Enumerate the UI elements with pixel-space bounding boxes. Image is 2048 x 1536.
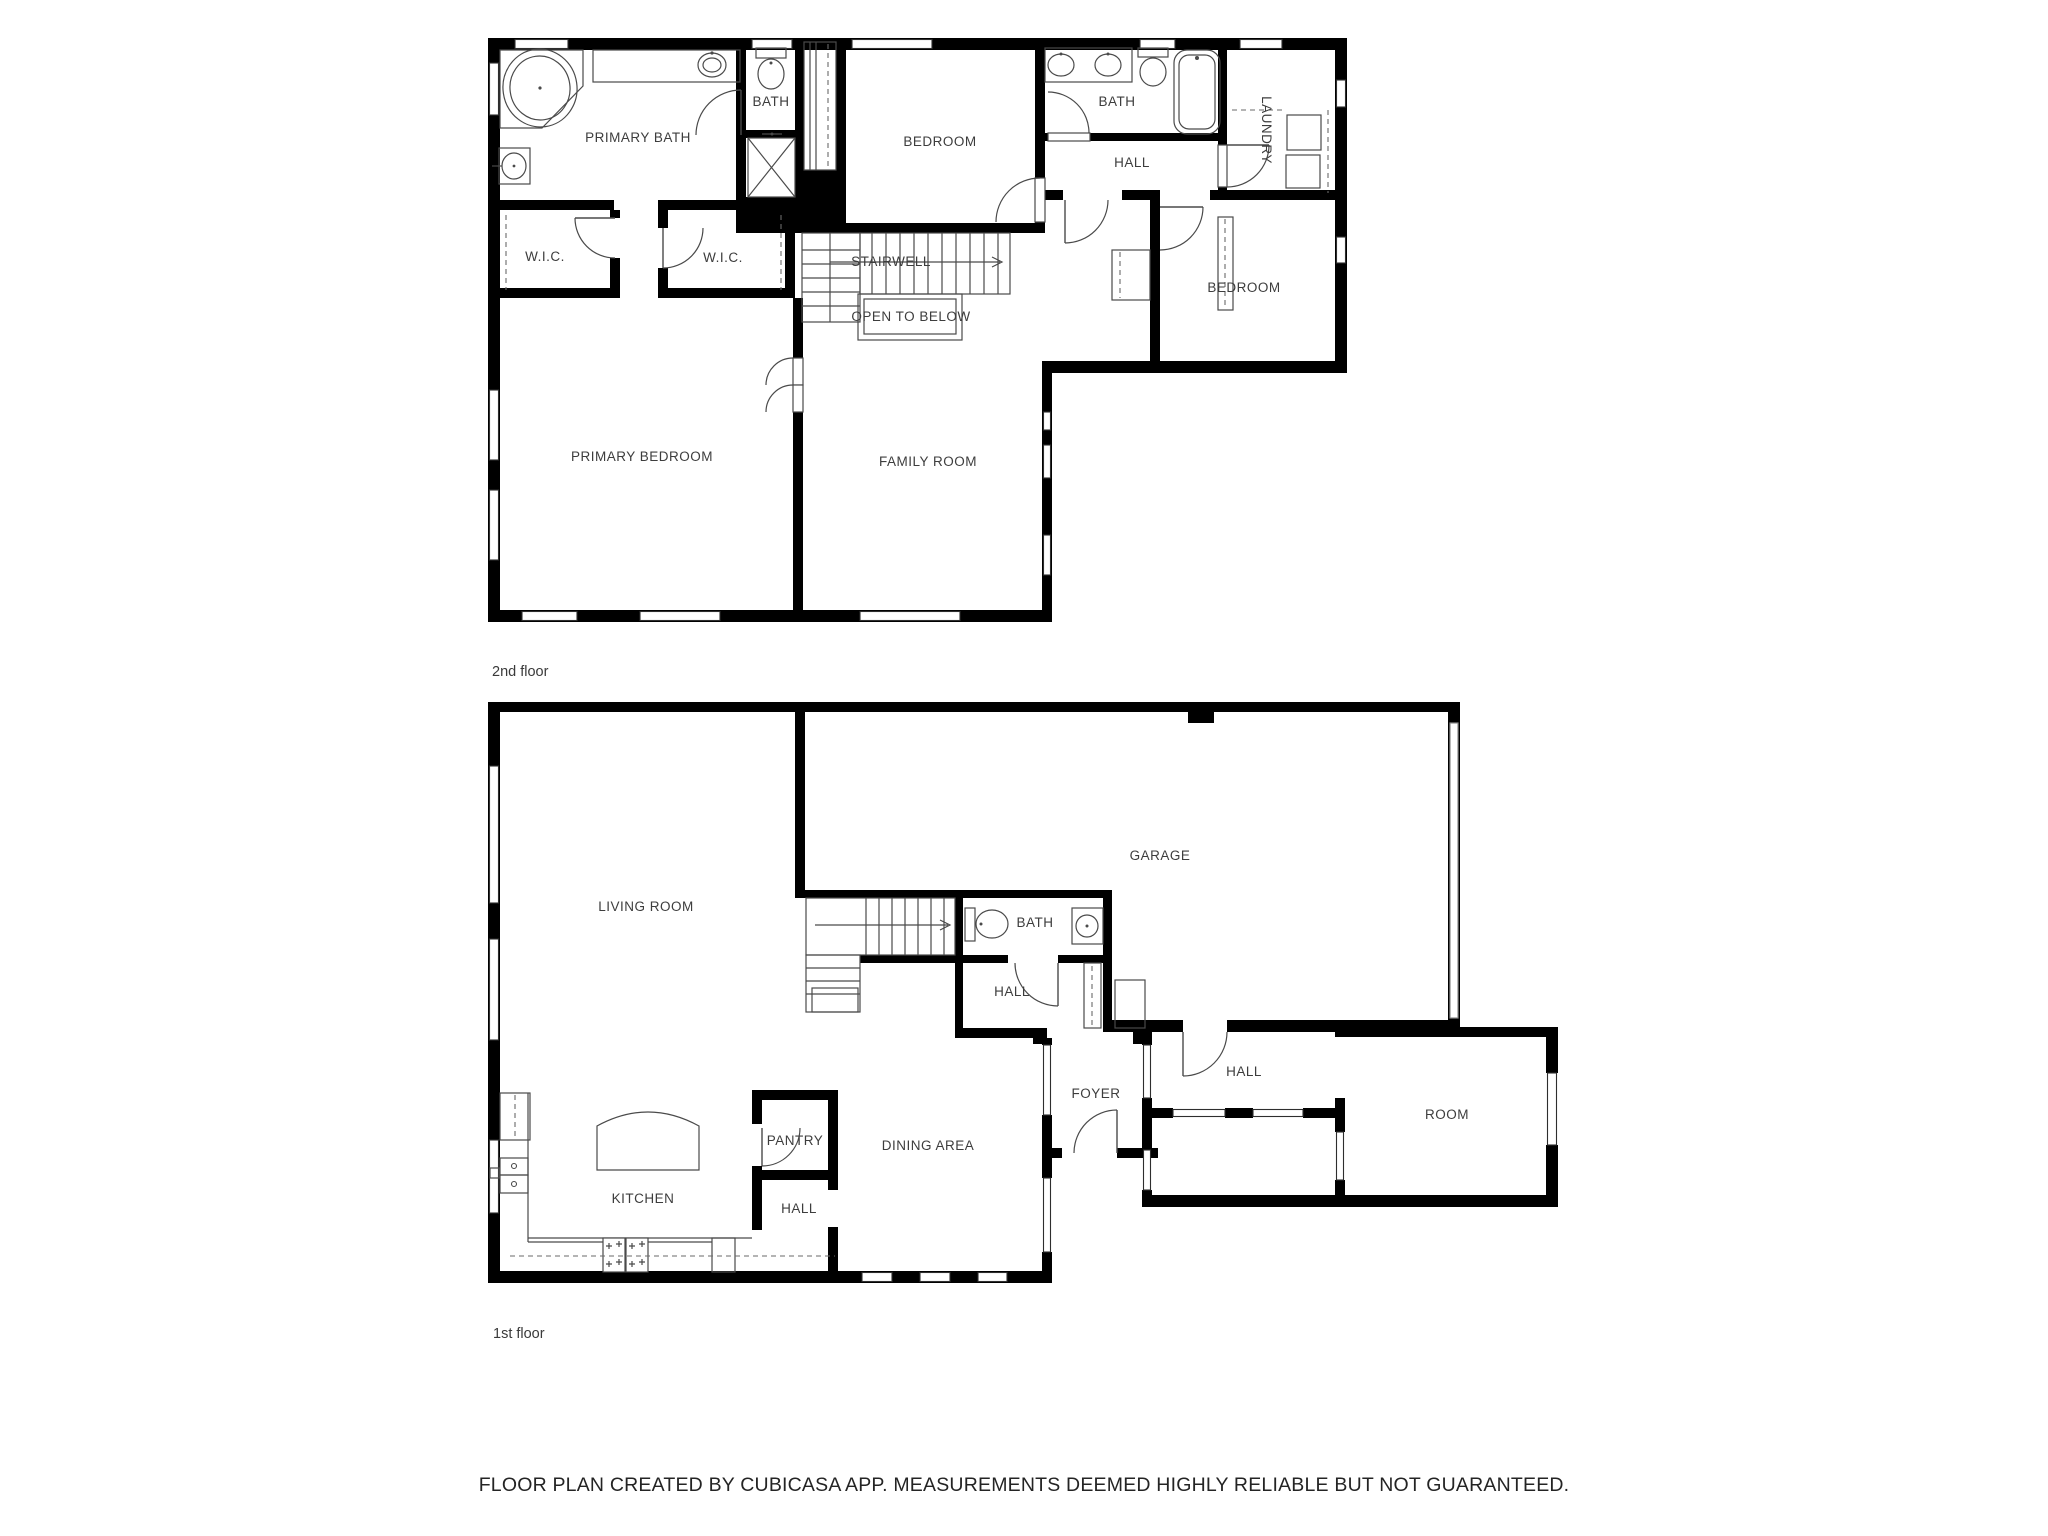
caption-1st-floor: 1st floor [493,1326,545,1342]
floor-plan-2nd: PRIMARY BATH BATH BEDROOM BATH LAUNDRY H… [488,38,1347,680]
garage-door-track [1450,723,1458,1018]
room-label-bath-1st: BATH [1016,915,1053,930]
bath-right-fixtures [1045,48,1220,134]
bathtub [1174,50,1220,134]
sink [1072,908,1103,944]
dishwasher [712,1238,735,1272]
floor-plan-canvas: PRIMARY BATH BATH BEDROOM BATH LAUNDRY H… [0,0,2048,1536]
sink [1048,53,1074,77]
room-label-primary-bedroom: PRIMARY BEDROOM [571,449,713,464]
walls-2nd-floor [488,38,1347,622]
hall-closets-2nd [1112,217,1233,310]
footer-disclaimer: FLOOR PLAN CREATED BY CUBICASA APP. MEAS… [479,1474,1570,1496]
room-label-stairwell: STAIRWELL [851,254,931,269]
bedroom-closet-chase [804,42,836,170]
range-cooktop [603,1238,648,1272]
dryer [1286,155,1320,188]
room-label-laundry: LAUNDRY [1259,96,1274,164]
room-label-hall-2nd: HALL [1114,155,1150,170]
room-label-bath-right: BATH [1098,94,1135,109]
room-label-wic-right: W.I.C. [703,250,743,265]
room-label-bedroom-middle: BEDROOM [903,134,976,149]
staircase-1st [806,898,955,1012]
room-label-room: ROOM [1425,1107,1469,1122]
vanity-counter [593,50,740,82]
sink [1095,53,1121,77]
vanity-counter [1045,48,1132,82]
room-label-bedroom-right: BEDROOM [1207,280,1280,295]
room-label-wic-left: W.I.C. [525,249,565,264]
floor-plan-document: { "document": { "type": "floor-plan", "c… [0,0,2048,1536]
room-label-garage: GARAGE [1130,848,1191,863]
shower [748,133,795,198]
refrigerator [500,1093,530,1140]
kitchen-fixtures [490,1093,835,1272]
toilet [756,48,786,89]
washer [1287,115,1321,150]
windows-2nd-floor [490,40,1346,621]
room-label-living-room: LIVING ROOM [598,899,694,914]
floor-plan-1st: LIVING ROOM GARAGE BATH HALL FOYER HALL … [488,702,1558,1342]
primary-bath-fixtures [492,44,795,197]
toilet [965,908,1008,941]
room-label-family-room: FAMILY ROOM [879,454,977,469]
caption-2nd-floor: 2nd floor [492,664,549,680]
hall-closet-slider [1084,963,1101,1028]
room-label-hall-center: HALL [994,984,1030,999]
room-label-bath-small: BATH [752,94,789,109]
laundry-fixtures [1232,110,1328,193]
room-label-pantry: PANTRY [767,1133,824,1148]
sink [698,51,726,77]
toilet [1138,48,1168,86]
range-hood [597,1112,699,1170]
room-label-open-to-below: OPEN TO BELOW [851,309,970,324]
room-label-primary-bath: PRIMARY BATH [585,130,691,145]
room-label-dining-area: DINING AREA [882,1138,975,1153]
room-label-kitchen: KITCHEN [612,1191,675,1206]
room-label-hall-kitchen: HALL [781,1201,817,1216]
room-label-hall-right: HALL [1226,1064,1262,1079]
room-label-foyer: FOYER [1071,1086,1120,1101]
